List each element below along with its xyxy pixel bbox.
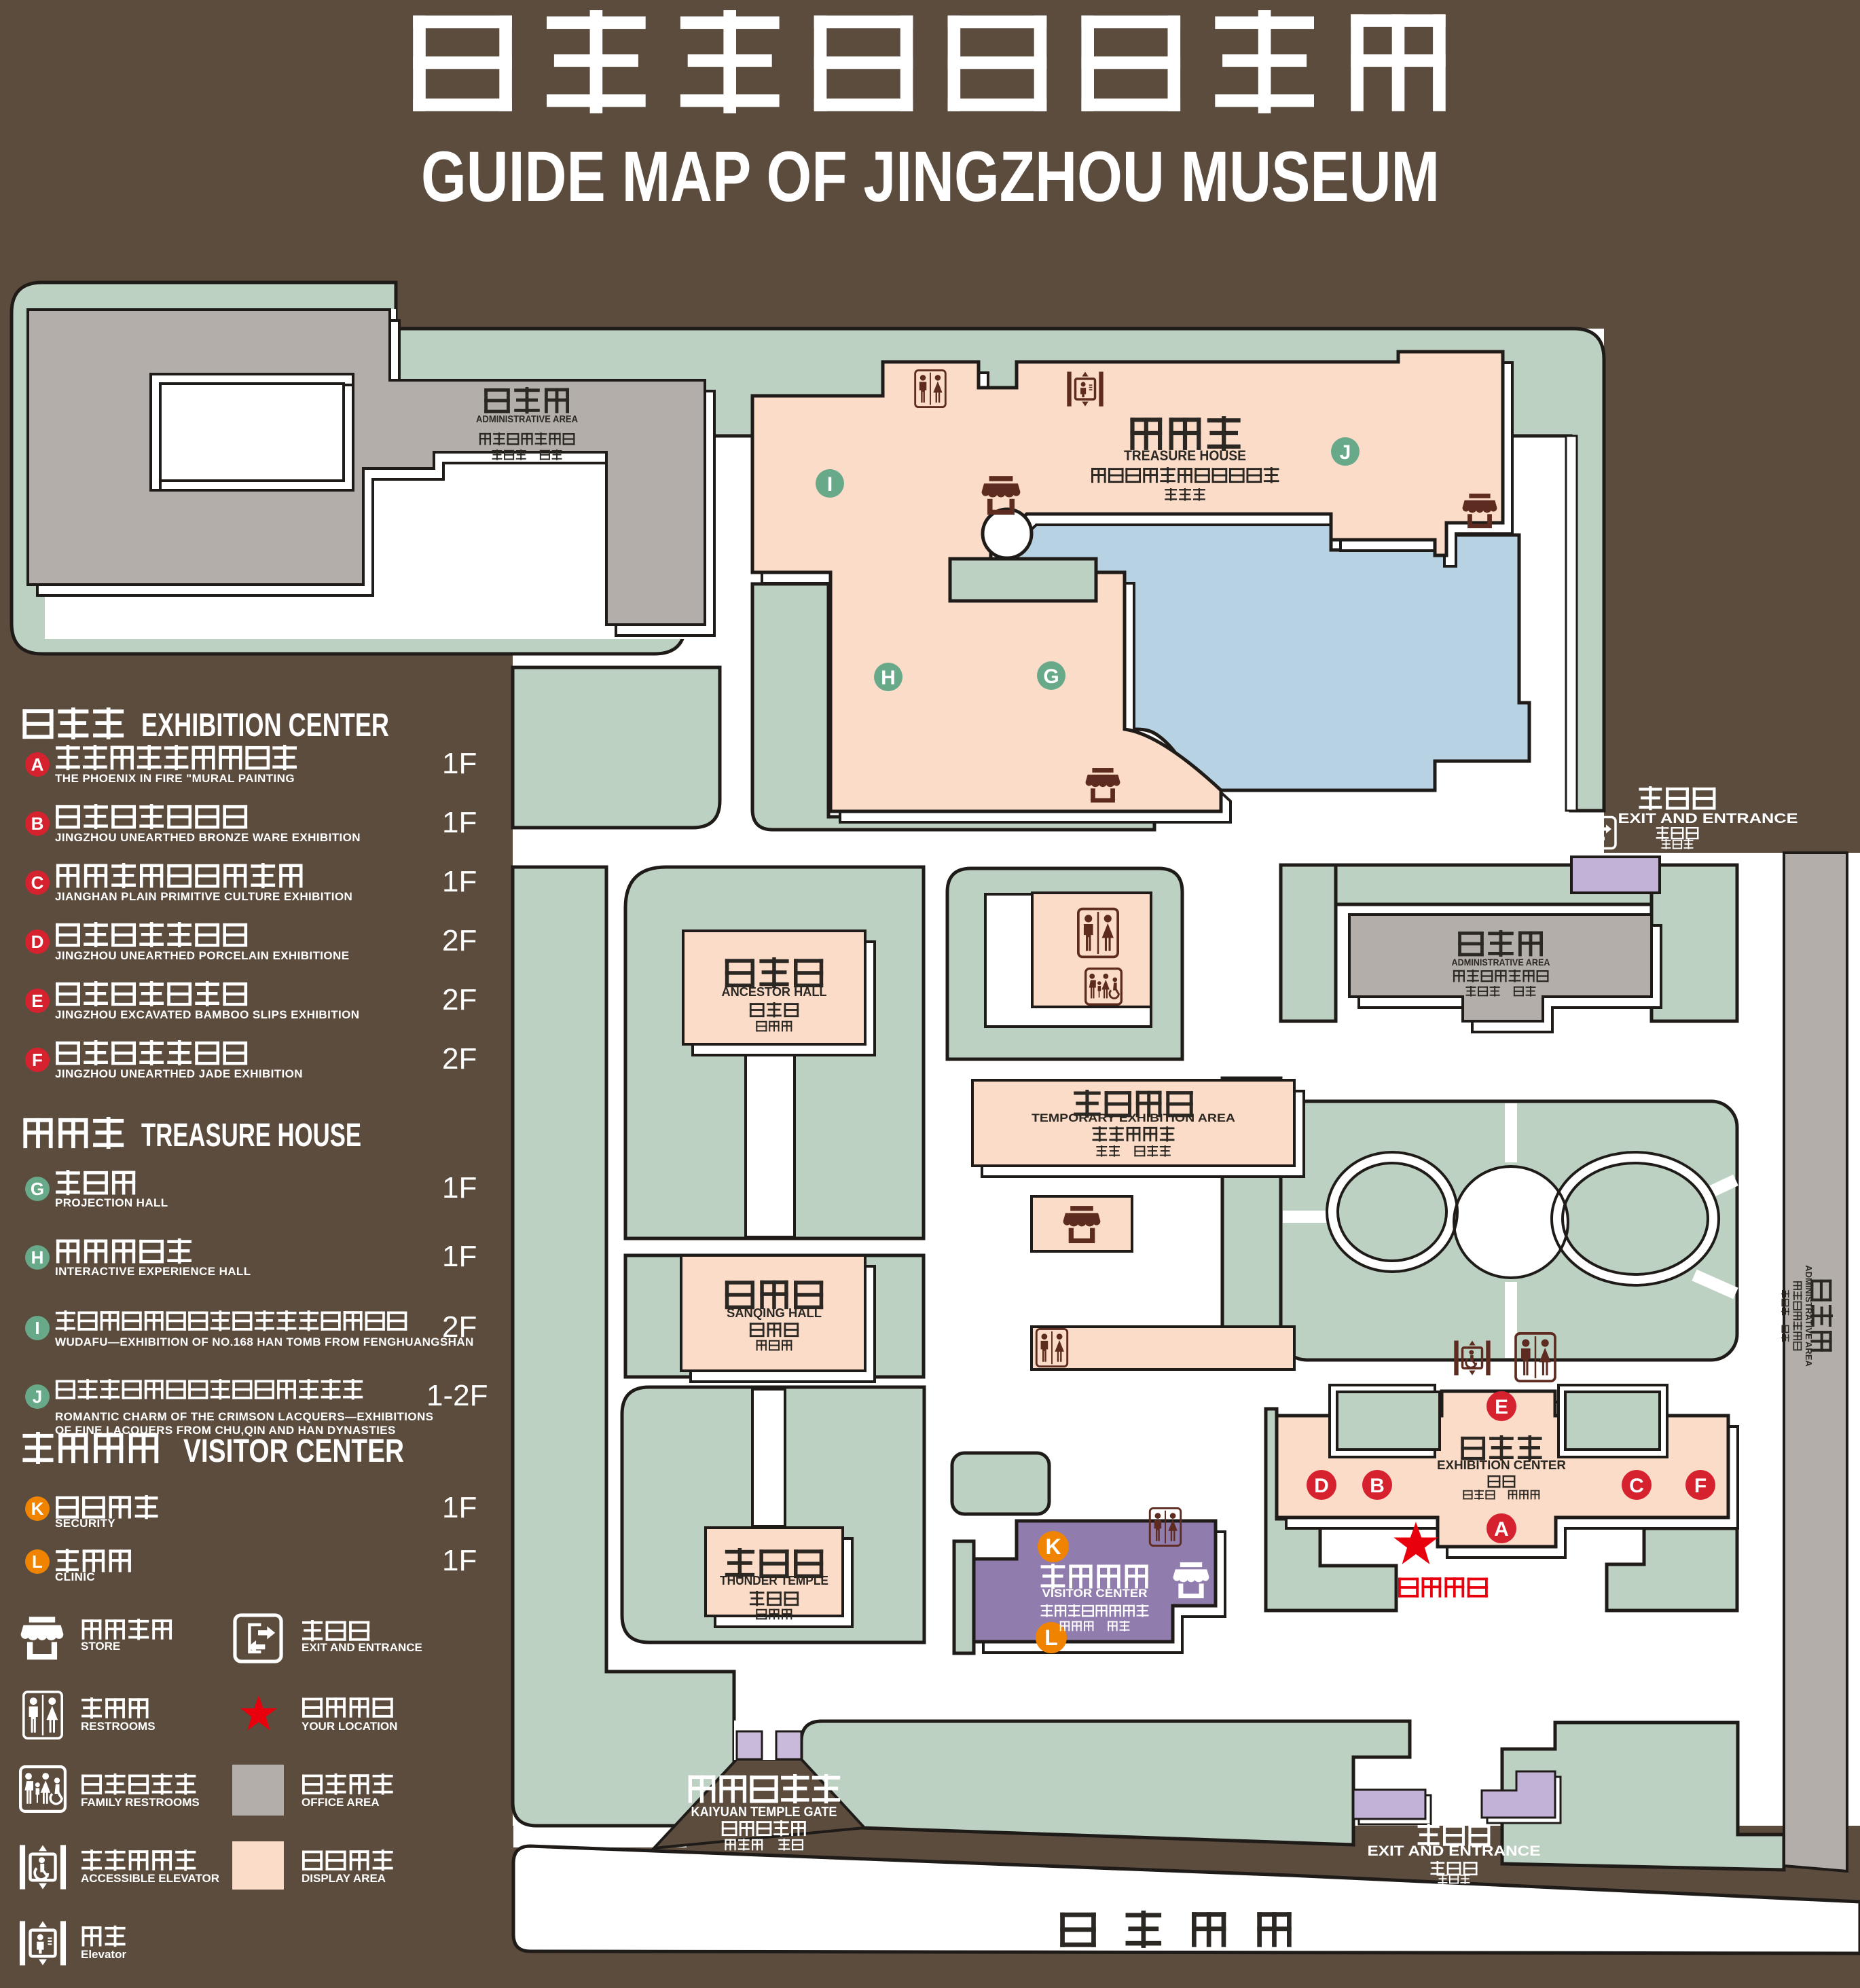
svg-text:K: K <box>1045 1534 1061 1559</box>
svg-text:2F: 2F <box>442 983 477 1016</box>
svg-text:2F: 2F <box>442 1042 477 1075</box>
svg-text:SECURITY: SECURITY <box>55 1517 115 1530</box>
svg-text:KAIYUAN TEMPLE GATE: KAIYUAN TEMPLE GATE <box>691 1805 837 1820</box>
svg-text:E: E <box>31 991 43 1011</box>
svg-text:C: C <box>1629 1475 1644 1497</box>
svg-text:JINGZHOU EXCAVATED BAMBOO SLIP: JINGZHOU EXCAVATED BAMBOO SLIPS EXHIBITI… <box>55 1008 359 1021</box>
svg-text:F: F <box>32 1050 43 1070</box>
svg-text:TEMPORARY EXHIBITION AREA: TEMPORARY EXHIBITION AREA <box>1032 1111 1235 1124</box>
svg-text:YOUR LOCATION: YOUR LOCATION <box>302 1720 397 1733</box>
svg-text:ACCESSIBLE ELEVATOR: ACCESSIBLE ELEVATOR <box>81 1872 219 1885</box>
svg-text:ADMINISTRATIVE AREA: ADMINISTRATIVE AREA <box>476 413 578 425</box>
svg-text:J: J <box>33 1386 42 1407</box>
svg-text:C: C <box>31 872 44 893</box>
svg-text:B: B <box>31 813 44 834</box>
svg-text:2F: 2F <box>442 1310 477 1344</box>
svg-text:F: F <box>1694 1475 1707 1497</box>
svg-text:FAMILY RESTROOMS: FAMILY RESTROOMS <box>81 1796 200 1809</box>
svg-text:1-2F: 1-2F <box>426 1379 488 1412</box>
svg-text:JINGZHOU UNEARTHED BRONZE WARE: JINGZHOU UNEARTHED BRONZE WARE EXHIBITIO… <box>55 831 361 844</box>
svg-text:THE PHOENIX IN FIRE "MURAL PAI: THE PHOENIX IN FIRE "MURAL PAINTING <box>55 772 295 785</box>
svg-text:Elevator: Elevator <box>81 1948 126 1961</box>
svg-text:1F: 1F <box>442 1240 477 1273</box>
svg-text:E: E <box>1495 1396 1508 1418</box>
svg-text:JINGZHOU UNEARTHED PORCELAIN E: JINGZHOU UNEARTHED PORCELAIN EXHIBITIONE <box>55 949 349 962</box>
svg-text:CLINIC: CLINIC <box>55 1570 95 1583</box>
svg-text:2F: 2F <box>442 924 477 957</box>
svg-text:OFFICE AREA: OFFICE AREA <box>302 1796 380 1809</box>
svg-text:I: I <box>35 1318 39 1338</box>
svg-text:DISPLAY AREA: DISPLAY AREA <box>302 1872 386 1885</box>
svg-text:G: G <box>1043 665 1059 688</box>
svg-text:WUDAFU—EXHIBITION OF NO.168 HA: WUDAFU—EXHIBITION OF NO.168 HAN TOMB FRO… <box>55 1336 474 1348</box>
svg-text:K: K <box>31 1498 44 1519</box>
svg-text:A: A <box>31 754 44 775</box>
svg-text:TREASURE HOUSE: TREASURE HOUSE <box>141 1118 361 1154</box>
svg-text:PROJECTION HALL: PROJECTION HALL <box>55 1196 168 1209</box>
svg-text:J: J <box>1340 441 1351 464</box>
svg-text:GUIDE MAP OF JINGZHOU MUSEUM: GUIDE MAP OF JINGZHOU MUSEUM <box>421 137 1440 217</box>
svg-text:EXIT AND ENTRANCE: EXIT AND ENTRANCE <box>1618 811 1798 826</box>
svg-text:D: D <box>31 932 44 952</box>
svg-text:ROMANTIC CHARM OF THE CRIMSON: ROMANTIC CHARM OF THE CRIMSON LACQUERS—E… <box>55 1410 433 1423</box>
svg-text:JIANGHAN PLAIN PRIMITIVE CULTU: JIANGHAN PLAIN PRIMITIVE CULTURE EXHIBIT… <box>55 890 352 903</box>
svg-text:RESTROOMS: RESTROOMS <box>81 1720 156 1733</box>
svg-text:1F: 1F <box>442 1491 477 1524</box>
svg-text:L: L <box>1044 1625 1058 1650</box>
svg-text:STORE: STORE <box>81 1640 120 1653</box>
svg-text:L: L <box>32 1551 43 1572</box>
svg-text:JINGZHOU UNEARTHED JADE EXHIBI: JINGZHOU UNEARTHED JADE EXHIBITION <box>55 1067 303 1080</box>
svg-text:B: B <box>1370 1475 1385 1497</box>
svg-text:INTERACTIVE EXPERIENCE HALL: INTERACTIVE EXPERIENCE HALL <box>55 1265 251 1278</box>
svg-text:1F: 1F <box>442 806 477 839</box>
svg-text:TREASURE HOUSE: TREASURE HOUSE <box>1124 448 1246 464</box>
svg-text:1F: 1F <box>442 747 477 780</box>
svg-text:I: I <box>827 473 833 496</box>
svg-text:D: D <box>1314 1475 1329 1497</box>
svg-text:EXIT AND ENTRANCE: EXIT AND ENTRANCE <box>302 1641 422 1654</box>
svg-text:1F: 1F <box>442 865 477 898</box>
svg-text:1F: 1F <box>442 1544 477 1577</box>
svg-text:H: H <box>31 1247 44 1268</box>
svg-text:ADMINISTRATIVE AREA: ADMINISTRATIVE AREA <box>1452 957 1550 968</box>
svg-text:1F: 1F <box>442 1171 477 1204</box>
svg-text:VISITOR CENTER: VISITOR CENTER <box>1042 1587 1148 1600</box>
svg-text:G: G <box>31 1179 44 1199</box>
svg-text:VISITOR CENTER: VISITOR CENTER <box>183 1433 404 1469</box>
svg-text:A: A <box>1494 1518 1509 1541</box>
svg-text:EXHIBITION CENTER: EXHIBITION CENTER <box>141 707 389 743</box>
svg-text:H: H <box>881 667 896 689</box>
